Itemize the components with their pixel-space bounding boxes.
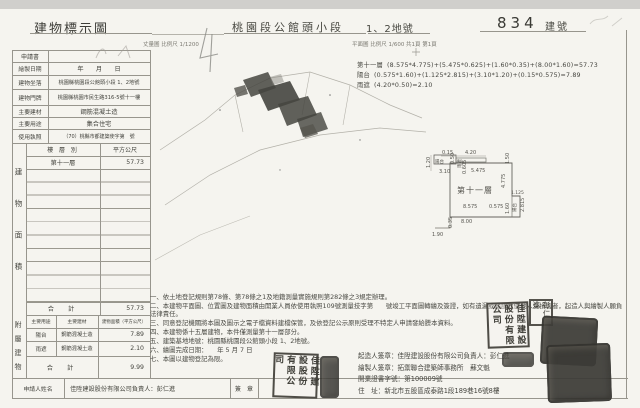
builder-signature-line: 起造人簽章：佳陞建設股份有限公司負責人：彭仁進 [358, 351, 510, 363]
annex-row-material: 鋼筋混凝土造 [56, 328, 98, 341]
balcony-label: 陽台 [435, 158, 444, 165]
field-label-building-location: 建物坐落 [12, 75, 48, 89]
dim-label: 4.20 [465, 150, 476, 156]
handwriting-mark [588, 12, 638, 32]
license-number-line: 開業證書字號：第100009號 [358, 374, 510, 386]
field-label-use-permit: 使用執照 [12, 129, 48, 143]
dim-label: 1.20 [426, 157, 432, 168]
floor-row-name: 第十一層 [26, 156, 100, 169]
balcony-label: 陽台 [511, 203, 518, 212]
narrow-ink-seal [320, 356, 339, 398]
dim-label: 3.10 [439, 169, 450, 175]
grid-line [64, 378, 65, 398]
annex-col-material: 主要建材 [56, 315, 98, 328]
annex-total-area: 9.99 [98, 356, 150, 378]
dim-label: 1.90 [432, 232, 443, 238]
building-footprint [234, 85, 248, 97]
empty-table-rows [26, 169, 150, 302]
unit-floor-plan: 0.15 4.20 0.50 雨遮 1.20 陽台 3.10 0.605 5.4… [425, 140, 625, 255]
floor-table-side-label: 建物面積 [13, 168, 24, 294]
survey-point [359, 139, 360, 140]
annex-row-material: 鋼筋混凝土造 [56, 341, 98, 356]
note-item: 一、依土地登記規則第78條、第78條之1及地籍測量實施規則第282條之3規定辦理… [150, 293, 628, 301]
field-label-main-material: 主要建材 [12, 105, 48, 117]
field-value-building-location: 桃園縣桃園段公館頭小段 1、2地號 [48, 75, 150, 89]
field-label-application: 申請書 [12, 50, 48, 62]
field-value-building-address: 桃園縣桃園市民生路316-5號十一樓 [48, 89, 150, 105]
dim-label: 1.125 [511, 190, 524, 196]
floor-total-label: 合 計 [26, 302, 100, 315]
field-value-main-material: 鋼筋混凝土造 [48, 105, 150, 117]
survey-point [279, 169, 280, 170]
dim-label: 0.605 [462, 160, 468, 174]
signature-cell-label: 簽 章 [230, 378, 258, 398]
floor-column-header: 樓 層 別 [26, 143, 100, 156]
dim-label: 0.50 [450, 153, 456, 164]
applicant-label: 申請人姓名 [12, 378, 64, 398]
handwriting-mark [88, 40, 148, 66]
room-label: 第十一層 [457, 185, 493, 195]
floor-row-area: 57.73 [100, 156, 150, 169]
annex-total-label: 合 計 [26, 356, 98, 378]
small-ink-seal [502, 352, 534, 367]
survey-point [329, 94, 331, 96]
dim-label: 8.575 [463, 204, 477, 210]
page-title: 建物標示圖 [34, 18, 109, 37]
dim-label: 4.775 [501, 174, 507, 188]
dim-label: 0.35 [448, 217, 454, 228]
floor-total-area: 57.73 [100, 302, 150, 315]
header-underline [30, 33, 152, 34]
registrar-ink-seal [546, 343, 612, 403]
field-label-main-use: 主要用途 [12, 117, 48, 129]
header-underline [480, 31, 586, 32]
annex-row-area: 7.89 [98, 328, 150, 341]
applicant-name: 佳陞建設股份有限公司負責人：彭仁進 [70, 384, 175, 393]
drafter-signature-line: 繪製人簽章：拓禦聯合建築師事務所 蘇文魁 [358, 363, 510, 375]
area-column-header: 平方公尺 [100, 143, 150, 156]
cross-mark [412, 48, 420, 56]
survey-point [219, 109, 221, 111]
site-plan-sketch [150, 20, 435, 300]
signature-block: 起造人簽章：佳陞建設股份有限公司負責人：彭仁進 繪製人簽章：拓禦聯合建築師事務所… [358, 351, 510, 397]
annex-col-area: 建物面積（平方公尺） [98, 315, 150, 328]
dim-label: 5.475 [471, 168, 485, 174]
dim-label: 0.575 [489, 204, 503, 210]
dim-label: 8.00 [461, 219, 472, 225]
grid-line [12, 398, 628, 399]
annex-row-use: 陽台 [26, 328, 56, 341]
field-value-main-use: 集合住宅 [48, 117, 150, 129]
parcel-boundary-line [165, 128, 426, 205]
annex-col-use: 主要用途 [26, 315, 56, 328]
field-value-use-permit: （70）桃縣市都建築使字第 號 [48, 129, 150, 143]
address-line: 住 址：新北市五股區成泰路1段189巷16號8樓 [358, 386, 510, 398]
grid-line [258, 378, 259, 398]
annex-row-use: 雨遮 [26, 341, 56, 356]
company-seal: 佳陞建設股份有限公司 [486, 301, 530, 348]
field-label-drawing-date: 繪製日期 [12, 62, 48, 75]
company-seal: 佳陞建設股份有限公司 [272, 352, 319, 399]
parcel-boundary-line [155, 216, 250, 260]
field-label-building-address: 建物門牌 [12, 89, 48, 105]
pencil-mark [200, 28, 218, 72]
scanned-building-survey-document: 建物標示圖 桃園段公館頭小段 1、2地號 834 建號 丈量圖 比例尺 1/12… [0, 0, 640, 408]
building-number: 834 [497, 14, 538, 32]
dim-label: 1.50 [505, 153, 511, 164]
dim-label: 1.60 [505, 203, 511, 214]
scan-edge-band [0, 0, 640, 9]
annex-table-side-label: 附屬建物 [13, 320, 23, 378]
annex-row-area: 2.10 [98, 341, 150, 356]
dim-label: 2.815 [520, 198, 526, 212]
